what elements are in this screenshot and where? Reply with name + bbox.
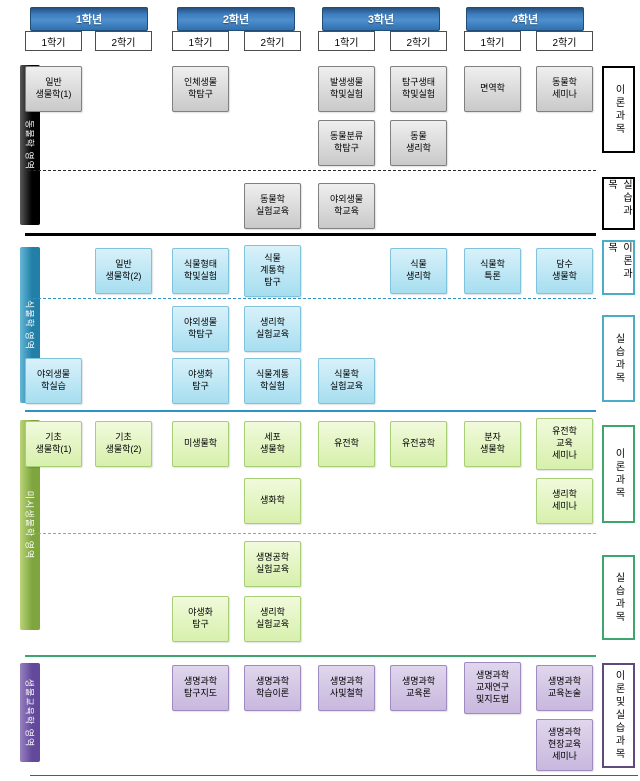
course-box: 생명과학 현장교육 세미나 <box>536 719 593 771</box>
semester-header: 2학기 <box>95 31 152 51</box>
course-box: 생명공학 실험교육 <box>244 541 301 587</box>
semester-header: 2학기 <box>536 31 593 51</box>
year-header: 1학년 <box>30 7 148 31</box>
semester-header: 1학기 <box>318 31 375 51</box>
course-box: 생명과학 교재연구 및지도법 <box>464 662 521 714</box>
year-header: 2학년 <box>177 7 295 31</box>
section-bar-label: 생물교육학 영역 <box>24 678 37 746</box>
course-box: 면역학 <box>464 66 521 112</box>
course-box: 생명과학 교육론 <box>390 665 447 711</box>
section-divider-dashed <box>28 298 596 299</box>
section-bar: 생물교육학 영역 <box>20 663 40 762</box>
course-box: 생리학 실험교육 <box>244 596 301 642</box>
year-header: 3학년 <box>322 7 440 31</box>
course-box: 일반 생물학(2) <box>95 248 152 294</box>
course-box: 세포 생물학 <box>244 421 301 467</box>
course-box: 생리학 세미나 <box>536 478 593 524</box>
course-box: 유전학 교육 세미나 <box>536 418 593 470</box>
semester-header: 1학기 <box>464 31 521 51</box>
course-box: 동물분류 학탐구 <box>318 120 375 166</box>
course-box: 동물학 실험교육 <box>244 183 301 229</box>
section-bar-label: 동물학 영역 <box>24 120 37 170</box>
course-box: 야생화 탐구 <box>172 358 229 404</box>
bottom-border-line <box>30 775 638 776</box>
course-box: 식물계통 학실험 <box>244 358 301 404</box>
course-box: 담수 생물학 <box>536 248 593 294</box>
course-box: 분자 생물학 <box>464 421 521 467</box>
section-bar-label: 식물학 영역 <box>24 300 37 350</box>
section-divider-dashed <box>28 533 596 534</box>
curriculum-diagram: 1학년1학기2학기2학년1학기2학기3학년1학기2학기4학년1학기2학기동물학 … <box>0 0 640 781</box>
course-box: 동물학 세미나 <box>536 66 593 112</box>
course-box: 야생화 탐구 <box>172 596 229 642</box>
course-box: 생명과학 교육논술 <box>536 665 593 711</box>
course-type-label: 이론과목 <box>602 240 635 295</box>
section-divider-dashed <box>28 170 596 171</box>
course-type-label: 실습과목 <box>602 555 635 640</box>
course-box: 생명과학 탐구지도 <box>172 665 229 711</box>
course-box: 야외생물 학탐구 <box>172 306 229 352</box>
course-box: 야외생물 학교육 <box>318 183 375 229</box>
course-box: 유전공학 <box>390 421 447 467</box>
course-box: 동물 생리학 <box>390 120 447 166</box>
course-type-label: 이론과목 <box>602 425 635 523</box>
section-divider-solid <box>25 410 596 412</box>
semester-header: 2학기 <box>244 31 301 51</box>
section-divider-solid <box>25 655 596 657</box>
course-type-label: 이론및실습과목 <box>602 663 635 768</box>
semester-header: 1학기 <box>25 31 82 51</box>
course-box: 생명과학 사및철학 <box>318 665 375 711</box>
course-type-label: 실습과목 <box>602 177 635 230</box>
course-box: 기초 생물학(2) <box>95 421 152 467</box>
course-box: 식물 계통학 탐구 <box>244 245 301 297</box>
course-box: 일반 생물학(1) <box>25 66 82 112</box>
course-box: 식물형태 학및실험 <box>172 248 229 294</box>
year-header: 4학년 <box>466 7 584 31</box>
course-box: 발생생물 학및실험 <box>318 66 375 112</box>
course-type-label: 이론과목 <box>602 66 635 153</box>
course-box: 인체생물 학탐구 <box>172 66 229 112</box>
course-box: 유전학 <box>318 421 375 467</box>
semester-header: 2학기 <box>390 31 447 51</box>
section-bar-label: 미시생물학 영역 <box>24 491 37 559</box>
course-box: 식물학 실험교육 <box>318 358 375 404</box>
course-box: 미생물학 <box>172 421 229 467</box>
course-box: 기초 생물학(1) <box>25 421 82 467</box>
course-box: 생리학 실험교육 <box>244 306 301 352</box>
course-box: 생화학 <box>244 478 301 524</box>
course-box: 식물 생리학 <box>390 248 447 294</box>
section-divider-solid <box>25 233 596 236</box>
course-box: 식물학 특론 <box>464 248 521 294</box>
course-box: 탐구생태 학및실험 <box>390 66 447 112</box>
course-type-label: 실습과목 <box>602 315 635 402</box>
semester-header: 1학기 <box>172 31 229 51</box>
course-box: 야외생물 학실습 <box>25 358 82 404</box>
course-box: 생명과학 학습이론 <box>244 665 301 711</box>
